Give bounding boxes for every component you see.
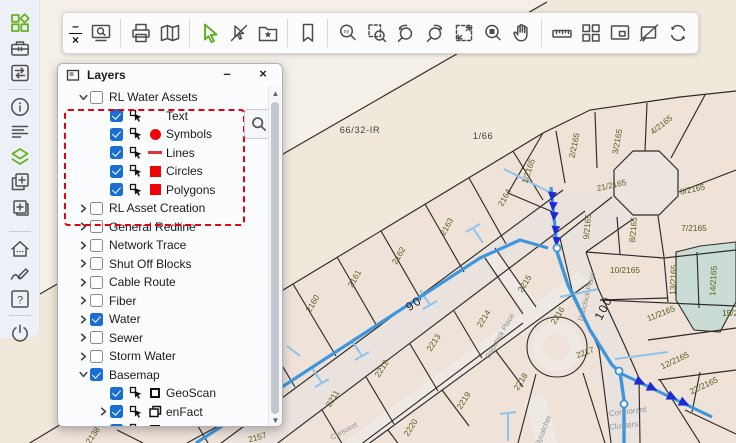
layer-checkbox[interactable] <box>90 294 103 307</box>
layer-checkbox[interactable] <box>110 128 123 141</box>
clear-selection-button[interactable] <box>224 18 253 48</box>
selectable-icon <box>129 183 144 197</box>
overview-map-button[interactable] <box>605 18 634 48</box>
layer-label: RL Asset Creation <box>109 201 205 215</box>
selectable-toggle[interactable] <box>129 109 144 123</box>
zoom-xy-icon: xy <box>336 21 360 45</box>
chevron-right-icon[interactable] <box>76 294 90 307</box>
toolbox-icon <box>9 37 31 59</box>
map-label: 7/2165 <box>681 223 707 233</box>
sidebar-divider <box>9 231 31 232</box>
layer-row-cable-route[interactable]: Cable Route <box>58 273 269 292</box>
layer-row-basemap[interactable]: Basemap <box>58 366 269 385</box>
layer-label: Lines <box>166 146 195 160</box>
toolbar-divider <box>287 19 288 47</box>
select-icon <box>198 21 222 45</box>
layer-label: General Redline <box>109 220 196 234</box>
power-icon <box>9 322 31 344</box>
map-label: 13/2165 <box>667 264 679 295</box>
full-extent-icon <box>452 21 476 45</box>
sidebar-item-power[interactable] <box>6 320 34 345</box>
tile-layout-button[interactable] <box>576 18 605 48</box>
layers-panel: Layers – × RL Water AssetsTextSymbolsLin… <box>57 63 283 427</box>
selectable-icon <box>129 146 144 160</box>
layer-row-fiber[interactable]: Fiber <box>58 292 269 311</box>
selectable-icon <box>129 164 144 178</box>
layer-row-enfact[interactable]: enFact <box>58 403 269 422</box>
map-label: 1/66 <box>473 131 494 141</box>
chevron-right-icon[interactable] <box>76 276 90 289</box>
toolbar-close-button[interactable]: × <box>69 34 82 47</box>
swap-icon <box>9 62 31 84</box>
layer-label: Cable Route <box>109 275 176 289</box>
map-label: 14/2165 <box>707 265 719 296</box>
layers-panel-title: Layers <box>87 68 126 82</box>
toolbar-divider <box>189 19 190 47</box>
toolbar-divider <box>327 19 328 47</box>
select-button[interactable] <box>195 18 224 48</box>
chevron-right-icon[interactable] <box>76 257 90 270</box>
layer-row-symbols[interactable]: Symbols <box>58 125 269 144</box>
zoom-previous-icon <box>394 21 418 45</box>
layer-checkbox[interactable] <box>110 387 123 400</box>
sidebar-item-toolbox[interactable] <box>6 35 34 60</box>
bookmarks-button[interactable] <box>293 18 322 48</box>
zoom-selection-icon <box>481 21 505 45</box>
layer-label: RL Water Assets <box>109 90 197 104</box>
chevron-right-icon[interactable] <box>76 331 90 344</box>
selectable-toggle[interactable] <box>129 164 144 178</box>
zoom-next-icon <box>423 21 447 45</box>
symbol-red-square <box>147 166 163 177</box>
layers-close-button[interactable]: × <box>254 65 272 83</box>
selectable-toggle[interactable] <box>129 405 144 419</box>
preview-button[interactable] <box>86 18 115 48</box>
layer-label: enFact <box>166 405 203 419</box>
layer-checkbox[interactable] <box>90 313 103 326</box>
layer-label: Symbols <box>166 127 212 141</box>
measure-icon <box>550 21 574 45</box>
map-label: 10/2165 <box>610 265 640 275</box>
tile-layout-icon <box>579 21 603 45</box>
zoom-window-icon <box>365 21 389 45</box>
toolbar-collapse-button[interactable]: – <box>69 20 82 34</box>
layer-label: Storm Water <box>109 349 176 363</box>
full-extent-button[interactable] <box>449 18 478 48</box>
layer-row-lines[interactable]: Lines <box>58 144 269 163</box>
layer-row-circles[interactable]: Circles <box>58 162 269 181</box>
layer-checkbox[interactable] <box>90 239 103 252</box>
symbol-black-square <box>147 388 163 398</box>
chevron-right-icon[interactable] <box>76 202 90 215</box>
sidebar-item-layers[interactable] <box>6 144 34 169</box>
layer-row-storm-water[interactable]: Storm Water <box>58 347 269 366</box>
sidebar-item-info[interactable] <box>6 94 34 119</box>
layer-row-sewer[interactable]: Sewer <box>58 329 269 348</box>
selectable-icon <box>129 405 144 419</box>
selectable-icon <box>129 127 144 141</box>
toolbar-window-controls: – × <box>69 20 82 47</box>
print-icon <box>129 21 153 45</box>
layers-tree: RL Water AssetsTextSymbolsLinesCirclesPo… <box>58 88 269 427</box>
layer-checkbox[interactable] <box>90 91 103 104</box>
layer-checkbox[interactable] <box>90 368 103 381</box>
layer-checkbox[interactable] <box>90 350 103 363</box>
pan-button[interactable] <box>507 18 536 48</box>
layer-row-water[interactable]: Water <box>58 310 269 329</box>
layer-row-rl-asset-creation[interactable]: RL Asset Creation <box>58 199 269 218</box>
sidebar-item-help[interactable]: ? <box>6 286 34 311</box>
chevron-right-icon[interactable] <box>76 350 90 363</box>
duplicate-icon <box>9 196 31 218</box>
modules-icon <box>9 12 31 34</box>
sidebar-item-home[interactable] <box>6 236 34 261</box>
legend-icon <box>9 121 31 143</box>
layer-label: Text <box>166 109 188 123</box>
svg-text:?: ? <box>16 294 22 306</box>
layer-label: Basemap <box>109 368 160 382</box>
selectable-icon <box>129 386 144 400</box>
panel-icon <box>66 68 80 82</box>
layer-row-rl-water-assets[interactable]: RL Water Assets <box>58 88 269 107</box>
layer-label: Sewer <box>109 331 143 345</box>
chevron-right-icon[interactable] <box>76 313 90 326</box>
toolbar-divider <box>541 19 542 47</box>
no-maptips-icon <box>637 21 661 45</box>
sidebar-item-modules[interactable] <box>6 10 34 35</box>
layers-panel-titlebar[interactable]: Layers – × <box>58 64 282 86</box>
chevron-right-icon[interactable] <box>76 220 90 233</box>
zoom-selection-button[interactable] <box>478 18 507 48</box>
info-icon <box>9 96 31 118</box>
saved-selections-button[interactable] <box>253 18 282 48</box>
zoom-next-button[interactable] <box>420 18 449 48</box>
layer-checkbox[interactable] <box>110 146 123 159</box>
symbol-black-square <box>147 425 163 427</box>
cascade-icon <box>149 405 162 418</box>
no-maptips-button[interactable] <box>634 18 663 48</box>
layers-minimize-button[interactable]: – <box>218 65 236 83</box>
layer-checkbox[interactable] <box>90 220 103 233</box>
layer-checkbox[interactable] <box>90 331 103 344</box>
map-button[interactable] <box>155 18 184 48</box>
scrollbar-thumb[interactable] <box>271 102 279 414</box>
layer-checkbox[interactable] <box>110 109 123 122</box>
symbol-cascade <box>147 405 163 418</box>
layers-icon <box>9 146 31 168</box>
print-button[interactable] <box>126 18 155 48</box>
layers-panel-body: RL Water AssetsTextSymbolsLinesCirclesPo… <box>58 86 282 427</box>
chevron-down-icon[interactable] <box>76 91 90 104</box>
layer-checkbox[interactable] <box>110 424 123 427</box>
selectable-toggle[interactable] <box>129 127 144 141</box>
refresh-icon <box>666 21 690 45</box>
layer-checkbox[interactable] <box>90 276 103 289</box>
saved-selections-icon <box>256 21 280 45</box>
add-copy-icon <box>9 171 31 193</box>
left-sidebar: ? <box>0 0 40 338</box>
layer-checkbox[interactable] <box>90 257 103 270</box>
symbol-red-circle <box>147 129 163 140</box>
selectable-icon <box>129 423 144 427</box>
help-icon: ? <box>9 288 31 310</box>
layer-label: Shut Off Blocks <box>109 257 191 271</box>
chevron-right-icon[interactable] <box>96 405 110 418</box>
chevron-down-icon[interactable] <box>76 368 90 381</box>
sidebar-item-swap[interactable] <box>6 60 34 85</box>
layer-row-text[interactable]: Text <box>58 107 269 126</box>
scroll-down-icon[interactable]: ▼ <box>269 414 282 427</box>
selectable-toggle[interactable] <box>129 386 144 400</box>
selectable-icon <box>129 109 144 123</box>
redline-icon <box>9 263 31 285</box>
symbol-red-square <box>147 184 163 195</box>
layer-checkbox[interactable] <box>110 405 123 418</box>
zoom-xy-button[interactable]: xy <box>333 18 362 48</box>
zoom-previous-button[interactable] <box>391 18 420 48</box>
sidebar-item-duplicate[interactable] <box>6 194 34 219</box>
refresh-button[interactable] <box>663 18 692 48</box>
measure-button[interactable] <box>547 18 576 48</box>
selectable-toggle[interactable] <box>129 423 144 427</box>
layer-label: GeoScan <box>166 386 216 400</box>
bookmarks-icon <box>296 21 320 45</box>
main-toolbar: – × xy <box>62 12 699 54</box>
map-icon <box>158 21 182 45</box>
selectable-toggle[interactable] <box>129 146 144 160</box>
layer-row-polygons[interactable]: Polygons <box>58 181 269 200</box>
clear-selection-icon <box>227 21 251 45</box>
pan-icon <box>510 21 534 45</box>
scroll-up-icon[interactable]: ▲ <box>269 87 282 100</box>
layer-label: Water <box>109 312 141 326</box>
layer-label: Fiber <box>109 294 136 308</box>
sidebar-item-add-copy[interactable] <box>6 169 34 194</box>
layer-row-shut-off-blocks[interactable]: Shut Off Blocks <box>58 255 269 274</box>
sidebar-item-legend[interactable] <box>6 119 34 144</box>
chevron-right-icon[interactable] <box>76 239 90 252</box>
layer-checkbox[interactable] <box>110 165 123 178</box>
layer-row-general-redline[interactable]: General Redline <box>58 218 269 237</box>
symbol-red-line <box>147 151 163 154</box>
app-window: 66/32-IR1/662/21653/21654/21651/216521/2… <box>0 0 736 443</box>
zoom-window-button[interactable] <box>362 18 391 48</box>
layer-row-network-trace[interactable]: Network Trace <box>58 236 269 255</box>
selectable-toggle[interactable] <box>129 183 144 197</box>
search-icon <box>251 116 267 132</box>
sidebar-divider <box>9 89 31 90</box>
layer-checkbox[interactable] <box>110 183 123 196</box>
map-label: 15/2165 <box>722 308 736 318</box>
layer-label: Polygons <box>166 183 215 197</box>
overview-map-icon <box>608 21 632 45</box>
layer-label: Circles <box>166 164 203 178</box>
home-icon <box>9 238 31 260</box>
layer-row-geoscan[interactable]: GeoScan <box>58 384 269 403</box>
map-label: 66/32-IR <box>340 125 380 135</box>
layer-row-truncated[interactable] <box>58 421 269 427</box>
preview-icon <box>89 21 113 45</box>
sidebar-item-redline[interactable] <box>6 261 34 286</box>
layer-checkbox[interactable] <box>90 202 103 215</box>
layers-scrollbar[interactable]: ▲ ▼ <box>268 86 282 427</box>
toolbar-divider <box>120 19 121 47</box>
sidebar-divider <box>9 315 31 316</box>
svg-text:xy: xy <box>343 29 349 35</box>
layer-label: Network Trace <box>109 238 186 252</box>
